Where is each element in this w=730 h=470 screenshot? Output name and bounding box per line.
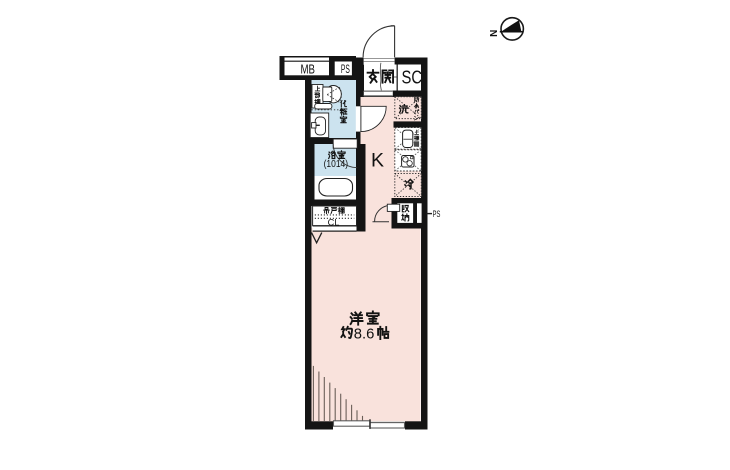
- svg-text:8.6: 8.6: [354, 327, 375, 343]
- svg-text:(1014): (1014): [324, 159, 349, 170]
- svg-text:PS: PS: [341, 64, 350, 76]
- svg-text:K: K: [371, 149, 384, 171]
- svg-text:SC: SC: [402, 67, 423, 87]
- svg-text:MB: MB: [301, 61, 316, 76]
- svg-text:N: N: [489, 30, 500, 37]
- svg-text:PS: PS: [433, 209, 441, 219]
